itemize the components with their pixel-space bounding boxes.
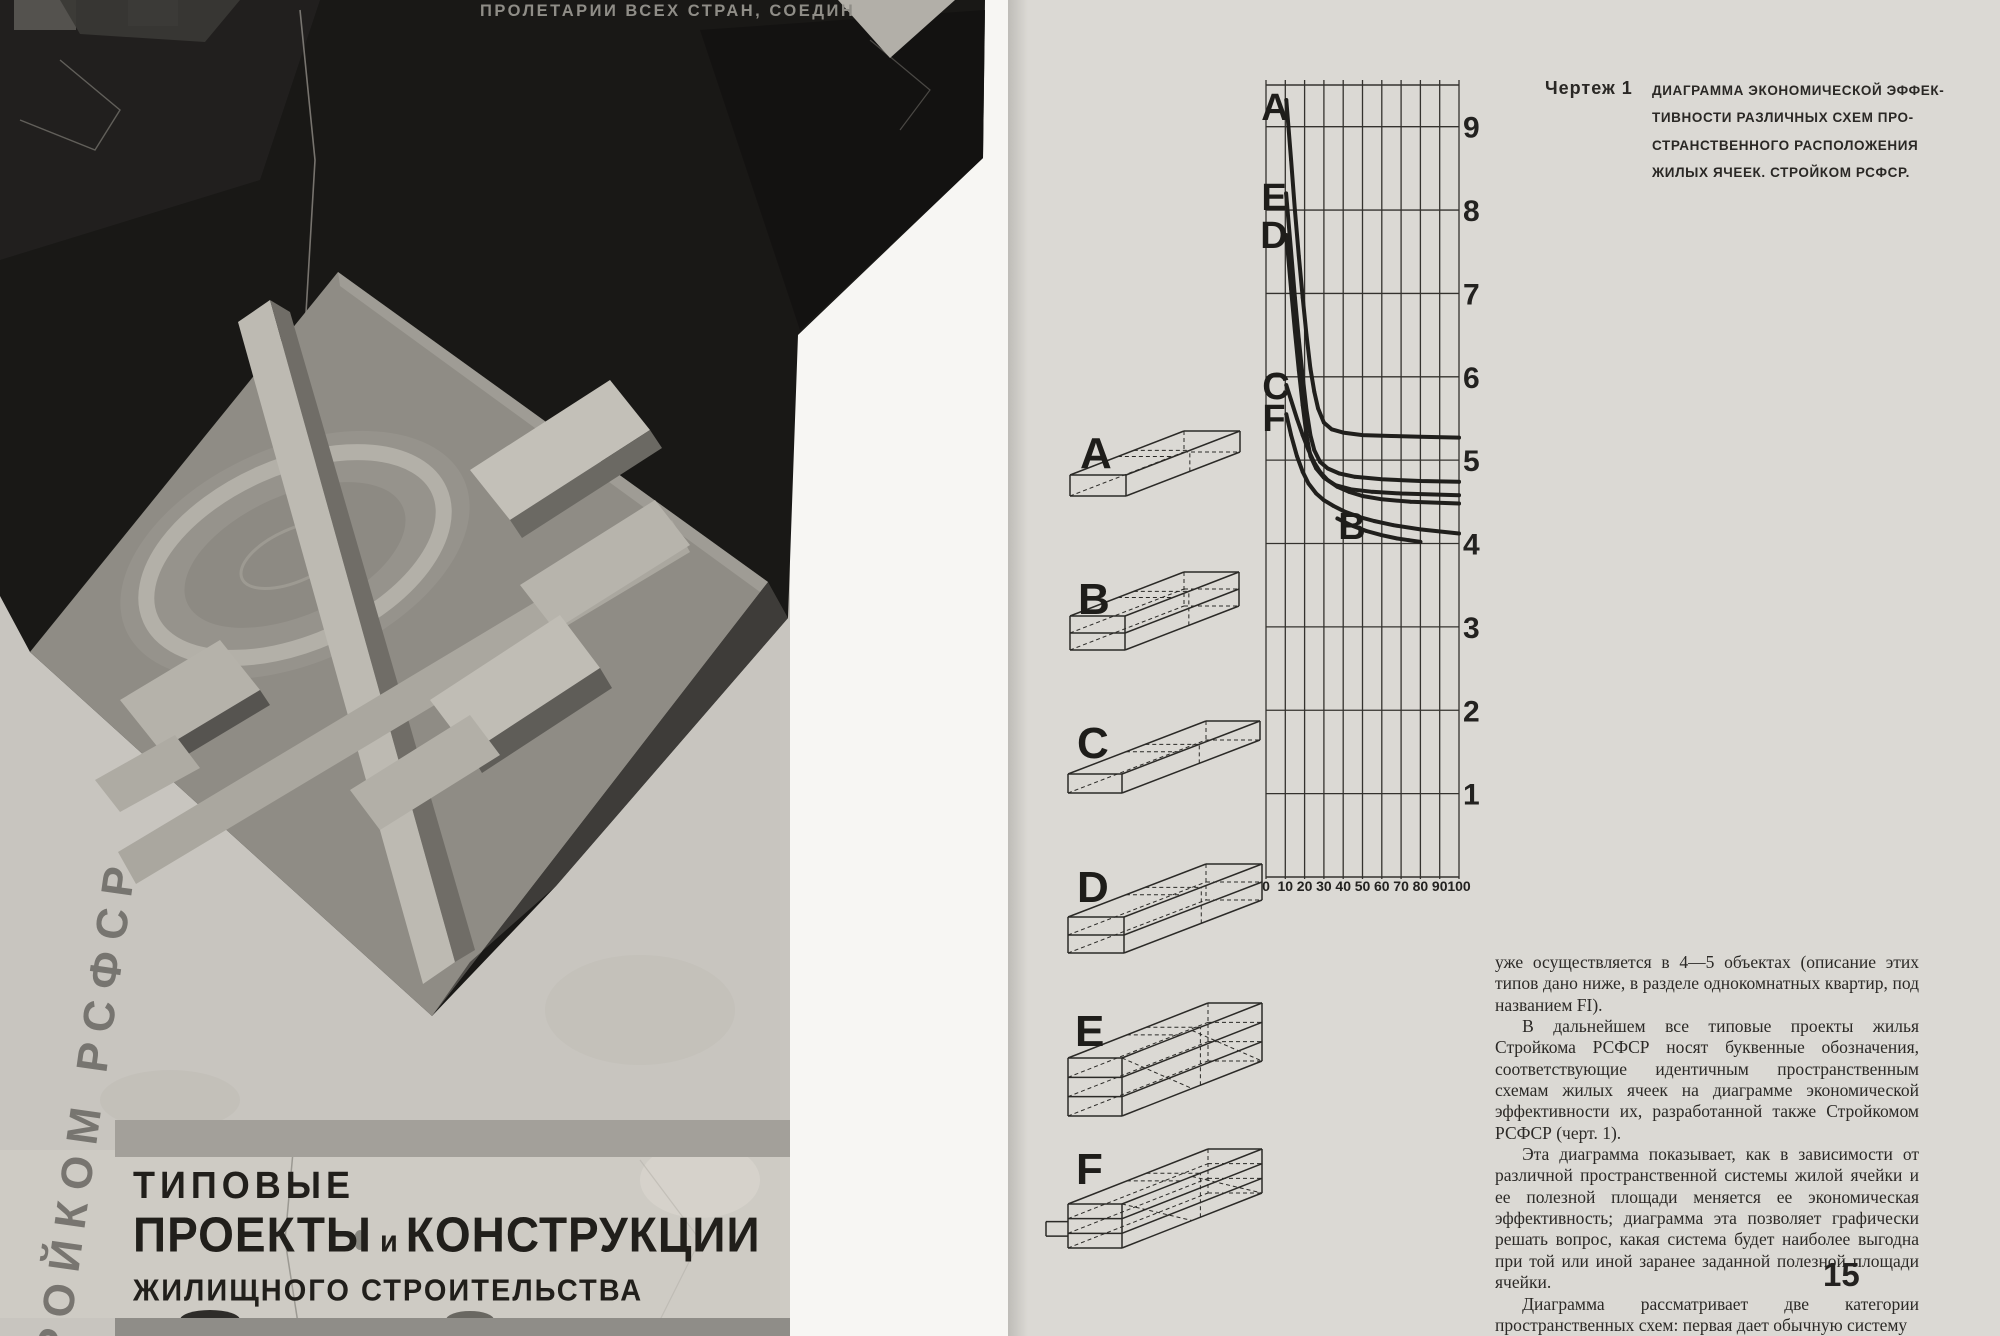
curve-label-B: B bbox=[1338, 506, 1365, 548]
x-tick-label: 30 bbox=[1316, 878, 1332, 894]
body-paragraph: В дальнейшем все типовые проекты жилья С… bbox=[1495, 1016, 1919, 1144]
curve-label-D: D bbox=[1260, 215, 1287, 257]
cover-title-line2-word3: КОНСТРУКЦИИ bbox=[406, 1207, 761, 1262]
cover-stripe-top bbox=[115, 1120, 790, 1157]
cover-title-line1: ТИПОВЫЕ bbox=[133, 1163, 355, 1208]
scheme-label-C: C bbox=[1077, 719, 1109, 768]
cover-title-line2-word1: ПРОЕКТЫ bbox=[133, 1207, 372, 1262]
figure-caption-line: СТРАНСТВЕННОГО РАСПОЛОЖЕНИЯ bbox=[1652, 132, 1944, 159]
curve-label-F: F bbox=[1262, 398, 1285, 440]
scheme-label-B: B bbox=[1078, 575, 1110, 624]
y-tick-label: 2 bbox=[1463, 695, 1480, 728]
x-tick-label: 70 bbox=[1393, 878, 1409, 894]
x-tick-label: 90 bbox=[1432, 878, 1448, 894]
figure-caption-label: Чертеж 1 bbox=[1545, 78, 1633, 99]
y-tick-label: 9 bbox=[1463, 112, 1480, 145]
figure-caption-line: ТИВНОСТИ РАЗЛИЧНЫХ СХЕМ ПРО- bbox=[1652, 104, 1944, 131]
y-tick-label: 6 bbox=[1463, 362, 1480, 395]
figure-caption-line: ЖИЛЫХ ЯЧЕЕК. СТРОЙКОМ РСФСР. bbox=[1652, 159, 1944, 186]
y-tick-label: 1 bbox=[1463, 779, 1480, 812]
cover-slogan: ПРОЛЕТАРИИ ВСЕХ СТРАН, СОЕДИН bbox=[480, 2, 855, 21]
chart-y-axis-labels: 123456789 bbox=[1463, 112, 1480, 812]
y-tick-label: 8 bbox=[1463, 195, 1480, 228]
y-tick-label: 7 bbox=[1463, 278, 1480, 311]
curve-label-E: E bbox=[1261, 177, 1286, 219]
cover-page: ПРОЛЕТАРИИ ВСЕХ СТРАН, СОЕДИН СТРОЙКОМ Р… bbox=[0, 0, 985, 1336]
x-tick-label: 10 bbox=[1278, 878, 1294, 894]
y-tick-label: 4 bbox=[1463, 529, 1480, 562]
page-number: 15 bbox=[1823, 1256, 1860, 1294]
book-spread-scan: ПРОЛЕТАРИИ ВСЕХ СТРАН, СОЕДИН СТРОЙКОМ Р… bbox=[0, 0, 2000, 1336]
cover-title-line2: ПРОЕКТЫиКОНСТРУКЦИИ bbox=[133, 1206, 761, 1263]
scheme-label-E: E bbox=[1075, 1007, 1104, 1056]
cover-title-line3: ЖИЛИЩНОГО СТРОИТЕЛЬСТВА bbox=[133, 1274, 643, 1309]
scheme-label-D: D bbox=[1077, 863, 1109, 912]
scheme-label-F: F bbox=[1076, 1145, 1103, 1194]
cover-stripe-bottom bbox=[115, 1318, 790, 1336]
figure-caption-line: ДИАГРАММА ЭКОНОМИЧЕСКОЙ ЭФФЕК- bbox=[1652, 77, 1944, 104]
body-paragraph: Диаграмма рассматривает две категории пр… bbox=[1495, 1294, 1919, 1336]
book-page-15: 1234567890102030405060708090100AEDCFBABC… bbox=[1008, 0, 2000, 1336]
x-tick-label: 40 bbox=[1335, 878, 1351, 894]
x-tick-label: 100 bbox=[1447, 878, 1471, 894]
y-tick-label: 3 bbox=[1463, 612, 1480, 645]
y-tick-label: 5 bbox=[1463, 445, 1480, 478]
x-tick-label: 60 bbox=[1374, 878, 1390, 894]
scheme-label-A: A bbox=[1080, 429, 1112, 478]
x-tick-label: 20 bbox=[1297, 878, 1313, 894]
x-tick-label: 50 bbox=[1355, 878, 1371, 894]
body-paragraph: уже осуществляется в 4—5 объектах (описа… bbox=[1495, 952, 1919, 1016]
figure-caption-text: ДИАГРАММА ЭКОНОМИЧЕСКОЙ ЭФФЕК-ТИВНОСТИ Р… bbox=[1652, 77, 1944, 187]
x-tick-label: 0 bbox=[1262, 878, 1270, 894]
curve-label-A: A bbox=[1261, 87, 1288, 129]
chart-x-axis-labels: 0102030405060708090100 bbox=[1262, 878, 1471, 894]
x-tick-label: 80 bbox=[1413, 878, 1429, 894]
cover-title-line2-word2: и bbox=[372, 1225, 406, 1259]
